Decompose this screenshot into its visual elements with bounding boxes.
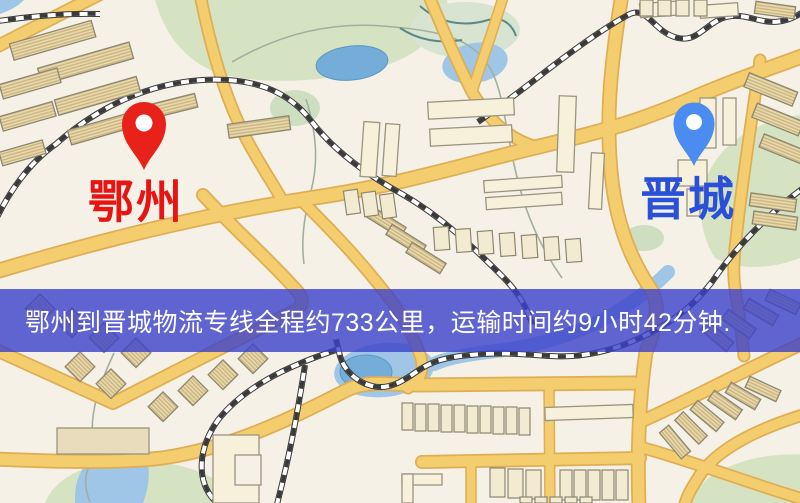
destination-pin-icon[interactable] [674, 102, 715, 166]
route-summary-text: 鄂州到晋城物流专线全程约733公里，运输时间约9小时42分钟. [25, 289, 731, 352]
destination-city-label: 晋城 [640, 176, 736, 222]
route-info-banner: 鄂州到晋城物流专线全程约733公里，运输时间约9小时42分钟. [0, 289, 800, 352]
buildings [0, 0, 800, 503]
map-view[interactable]: 鄂州 晋城 鄂州到晋城物流专线全程约733公里，运输时间约9小时42分钟. [0, 0, 800, 503]
origin-pin-icon[interactable] [122, 102, 166, 170]
map-canvas [0, 0, 800, 503]
origin-city-label: 鄂州 [88, 179, 184, 225]
